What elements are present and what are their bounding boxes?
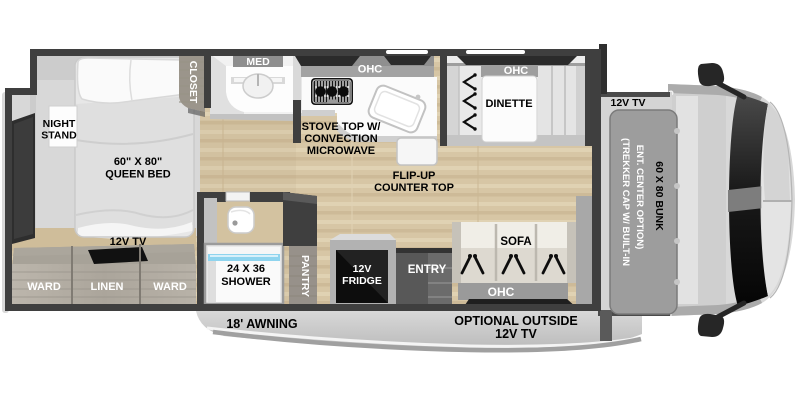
svg-text:WARD: WARD — [153, 281, 187, 293]
svg-text:(TREKKER CAP W/ BUILT-IN: (TREKKER CAP W/ BUILT-IN — [620, 138, 631, 266]
svg-text:18' AWNING: 18' AWNING — [226, 317, 297, 331]
svg-text:MED: MED — [246, 56, 270, 68]
svg-text:PANTRY: PANTRY — [299, 255, 311, 297]
svg-text:60 X 80 BUNK: 60 X 80 BUNK — [653, 161, 665, 231]
svg-text:STAND: STAND — [41, 130, 77, 142]
svg-text:NIGHT: NIGHT — [43, 118, 76, 130]
svg-text:STOVE TOP W/: STOVE TOP W/ — [302, 121, 381, 133]
svg-text:OHC: OHC — [358, 64, 383, 76]
svg-text:CONVECTION: CONVECTION — [304, 133, 377, 145]
svg-text:60" X 80": 60" X 80" — [114, 156, 162, 168]
svg-text:COUNTER TOP: COUNTER TOP — [374, 182, 454, 194]
svg-text:QUEEN BED: QUEEN BED — [105, 169, 170, 181]
svg-text:24 X 36: 24 X 36 — [227, 263, 265, 275]
svg-text:MICROWAVE: MICROWAVE — [307, 145, 375, 157]
svg-text:CLOSET: CLOSET — [187, 61, 199, 104]
svg-text:OHC: OHC — [504, 65, 529, 77]
svg-text:WARD: WARD — [27, 281, 61, 293]
svg-text:FLIP-UP: FLIP-UP — [393, 170, 436, 182]
svg-text:LINEN: LINEN — [91, 281, 124, 293]
svg-text:OPTIONAL OUTSIDE: OPTIONAL OUTSIDE — [454, 314, 577, 328]
svg-text:12V: 12V — [353, 263, 372, 275]
svg-text:DINETTE: DINETTE — [485, 98, 532, 110]
svg-text:SHOWER: SHOWER — [221, 276, 271, 288]
svg-text:ENT. CENTER OPTION): ENT. CENTER OPTION) — [634, 145, 645, 250]
svg-text:12V TV: 12V TV — [495, 327, 537, 341]
svg-text:12V TV: 12V TV — [610, 97, 645, 109]
svg-text:12V TV: 12V TV — [110, 236, 147, 248]
svg-text:SOFA: SOFA — [500, 236, 531, 248]
svg-text:FRIDGE: FRIDGE — [342, 275, 382, 287]
svg-text:OHC: OHC — [488, 285, 515, 299]
svg-text:ENTRY: ENTRY — [408, 264, 447, 276]
